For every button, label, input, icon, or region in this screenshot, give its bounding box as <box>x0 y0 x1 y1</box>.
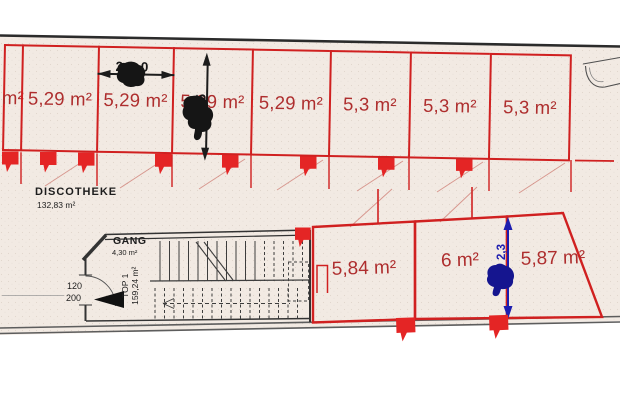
dim-arrow-right-icon <box>161 70 174 78</box>
dim-arrow-down-icon <box>201 148 209 161</box>
cell-area-label: 5,87 m² <box>507 247 600 271</box>
floor-plan: m² 5,29 m² 5,29 m² 5,29 m² 5,29 m² 5,3 m… <box>0 0 620 410</box>
top-storage-row: m² 5,29 m² 5,29 m² 5,29 m² 5,29 m² 5,3 m… <box>2 44 604 185</box>
room-area-discotheke: 132,83 m² <box>37 200 75 210</box>
cell-area-label: 5,29 m² <box>180 90 245 113</box>
room-area-top1: 159,24 m² <box>131 254 141 318</box>
room-name-gang: GANG <box>113 235 147 247</box>
dim-arrow-up-icon <box>203 53 211 66</box>
cell-area-label: 5,3 m² <box>503 96 557 119</box>
dim-arrow-left-icon <box>97 69 110 77</box>
storage-cell: 5,3 m² <box>408 51 490 159</box>
cell-area-label: 5,3 m² <box>423 94 477 117</box>
storage-cell: m² <box>2 44 22 151</box>
storage-cell: 5,3 m² <box>488 53 572 161</box>
storage-cell: 5,29 m² <box>171 47 252 155</box>
storage-cell: 5,29 m² <box>20 44 98 152</box>
door-height-label: 200 <box>66 293 81 303</box>
cell-area-label: 5,29 m² <box>28 87 93 110</box>
room-label-top1: TOP 1 159,24 m² <box>121 254 141 318</box>
room-name-discotheke: DISCOTHEKE <box>35 186 117 198</box>
cell-area-label: 5,3 m² <box>343 93 397 116</box>
cell-area-label: 5,29 m² <box>103 88 168 111</box>
cell-area-label: 5,29 m² <box>259 91 324 114</box>
door-width-label: 120 <box>67 281 82 291</box>
width-dimension-value: 2,0 <box>115 59 155 75</box>
storage-cell: 5,29 m² <box>250 49 330 157</box>
storage-cell: 5,3 m² <box>328 50 410 158</box>
cell-area-label: 5,84 m² <box>312 257 417 282</box>
blue-depth-dimension-value: 2,3 <box>496 232 508 272</box>
depth-dimension-value: 2,65 <box>193 85 209 129</box>
cell-area-label: 6 m² <box>415 249 506 273</box>
